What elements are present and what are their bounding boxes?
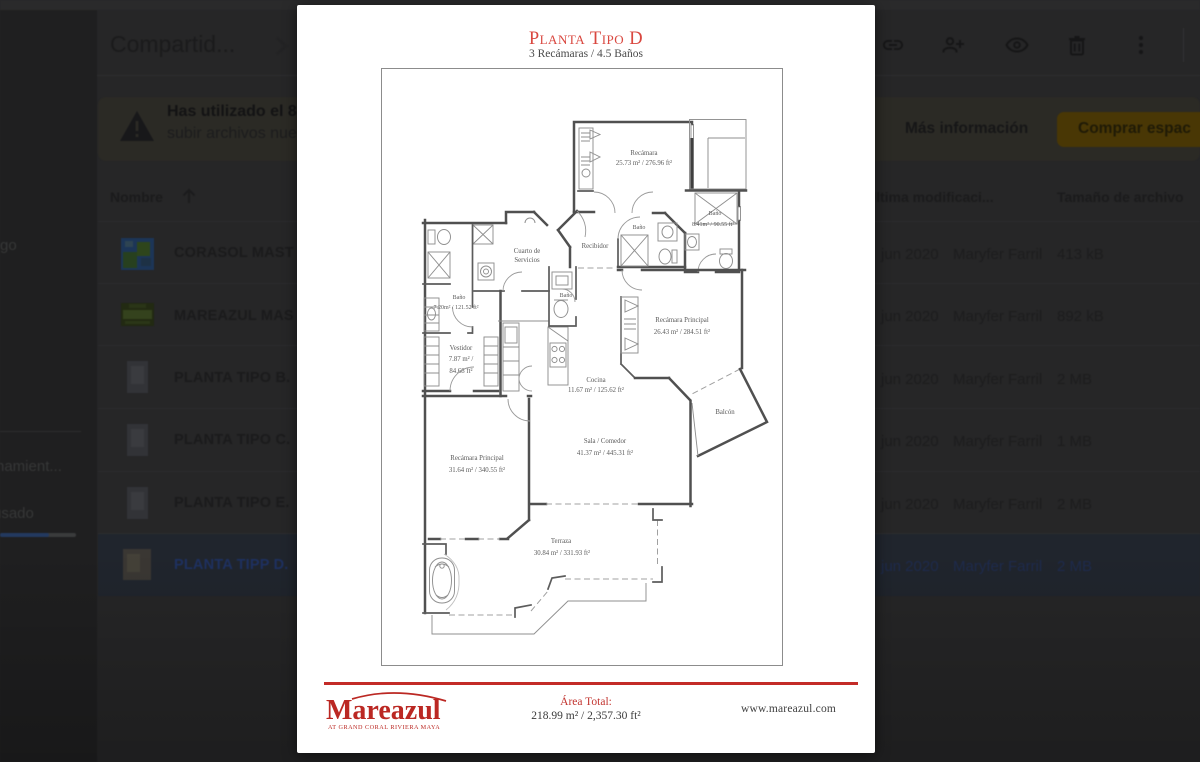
svg-text:11.67 m² / 125.62 ft²: 11.67 m² / 125.62 ft² — [568, 387, 624, 394]
svg-text:Cuarto de: Cuarto de — [514, 248, 541, 255]
svg-text:84.68 ft²: 84.68 ft² — [449, 368, 472, 375]
svg-text:Baño: Baño — [560, 293, 573, 299]
svg-text:AT GRAND CORAL RIVIERA MAYA: AT GRAND CORAL RIVIERA MAYA — [328, 724, 440, 731]
svg-text:Sala / Comedor: Sala / Comedor — [584, 438, 627, 445]
svg-text:31.64 m² / 340.55 ft²: 31.64 m² / 340.55 ft² — [449, 467, 505, 474]
svg-text:7.87 m² /: 7.87 m² / — [449, 356, 474, 363]
svg-text:41.37 m² / 445.31 ft²: 41.37 m² / 445.31 ft² — [577, 450, 633, 457]
svg-text:Baño: Baño — [453, 295, 466, 301]
svg-text:Baño: Baño — [633, 225, 646, 231]
svg-text:Recámara Principal: Recámara Principal — [655, 317, 709, 324]
svg-text:Terraza: Terraza — [551, 538, 571, 545]
svg-text:Vestidor: Vestidor — [450, 345, 473, 352]
svg-text:Recámara: Recámara — [630, 150, 657, 157]
svg-text:Baño: Baño — [709, 211, 722, 217]
svg-text:Recibidor: Recibidor — [582, 243, 610, 250]
svg-text:7.20m² / 121.52 ft²: 7.20m² / 121.52 ft² — [433, 304, 478, 311]
svg-text:25.73 m² / 276.96 ft²: 25.73 m² / 276.96 ft² — [616, 160, 672, 167]
svg-text:Recámara Principal: Recámara Principal — [450, 455, 504, 462]
svg-text:Cocina: Cocina — [586, 377, 605, 384]
svg-text:Balcón: Balcón — [715, 409, 735, 416]
svg-text:8.41m² / 90.55 ft²: 8.41m² / 90.55 ft² — [692, 221, 734, 228]
svg-text:Servicios: Servicios — [514, 257, 540, 264]
svg-text:30.84 m² / 331.93 ft²: 30.84 m² / 331.93 ft² — [534, 550, 590, 557]
svg-text:26.43 m² / 284.51 ft²: 26.43 m² / 284.51 ft² — [654, 329, 710, 336]
